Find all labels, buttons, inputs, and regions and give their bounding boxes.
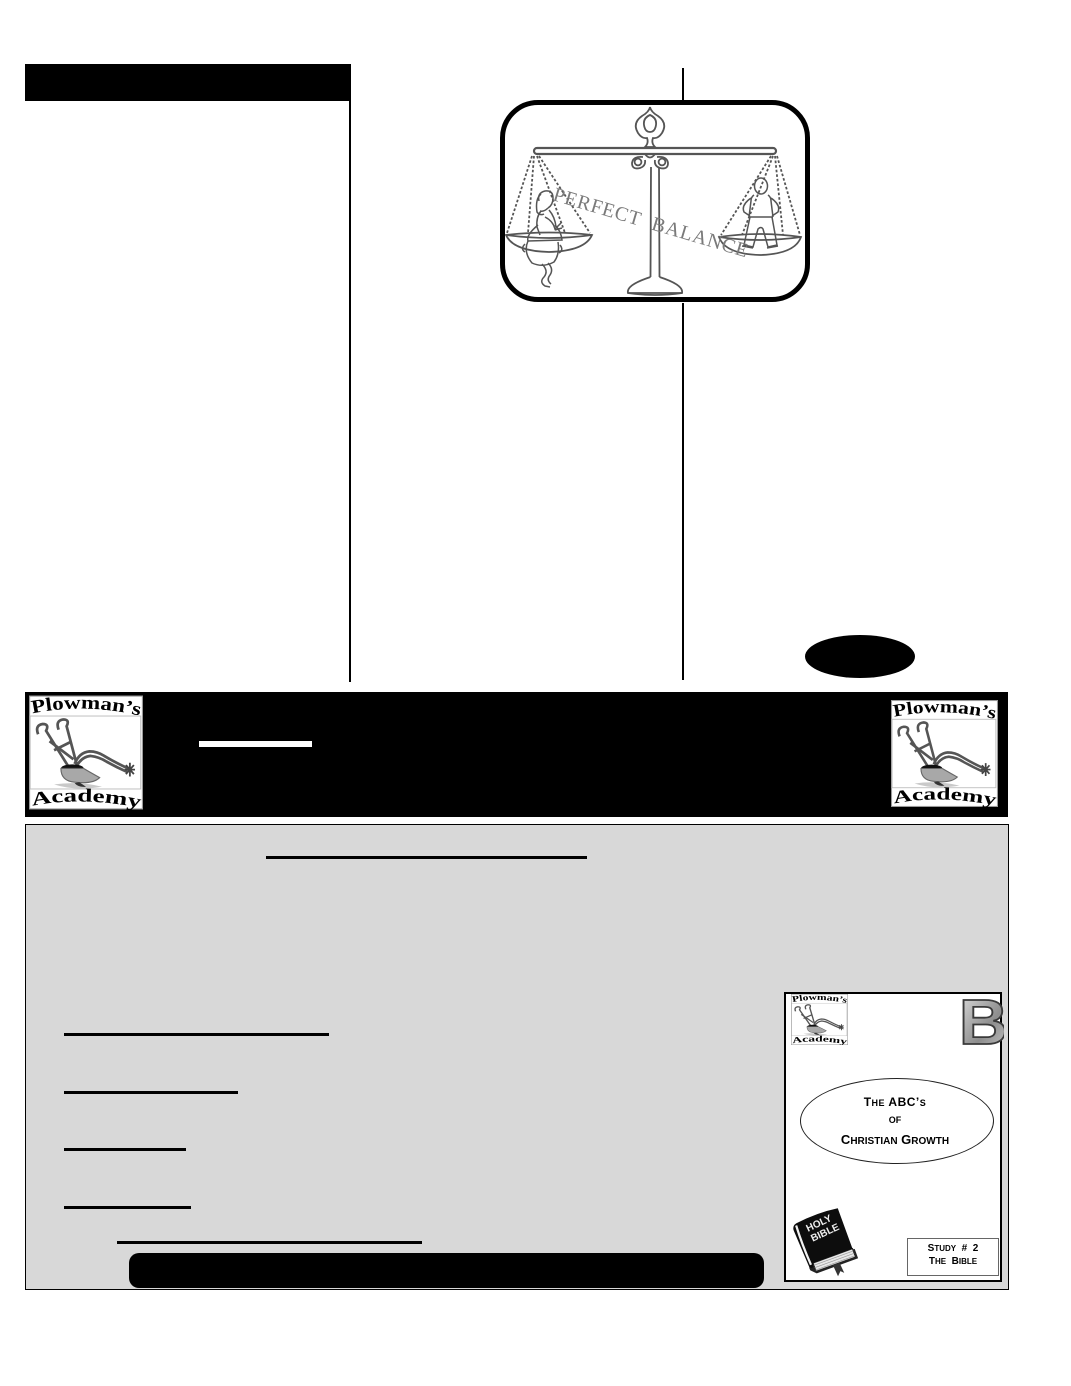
svg-text:B: B: [960, 995, 1004, 1047]
